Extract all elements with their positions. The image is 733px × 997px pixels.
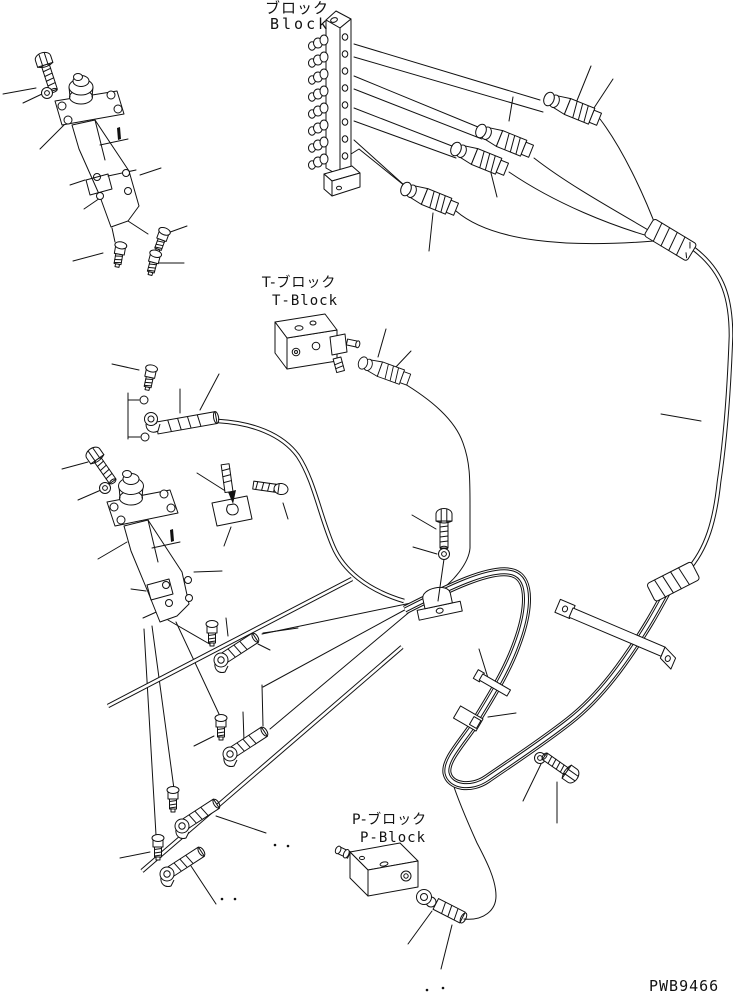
washer-mid-valve — [100, 483, 111, 494]
pilot-valve-upper — [34, 50, 172, 276]
t-block-label-en: T-Block — [272, 294, 338, 308]
mounting-bolt-lower — [535, 749, 582, 786]
clamp-washer — [439, 549, 450, 560]
p-block-label-jp: P-ブロック — [352, 813, 427, 827]
p-block-label-en: P-Block — [360, 831, 426, 845]
hose-wrap-bottom — [646, 561, 700, 602]
elbow-unit-3 — [167, 787, 221, 839]
hose-wrap-top — [644, 218, 697, 261]
p-block-hose-end — [433, 899, 468, 925]
manifold-block-label-en: Block — [270, 17, 330, 32]
bracket-fitting — [221, 464, 233, 493]
parts-diagram-page: ブロック Block T-ブロック T-Block P-ブロック P-Block… — [0, 0, 733, 997]
hydraulic-piping-diagram — [0, 0, 733, 997]
bracket-bolt — [253, 480, 289, 496]
manifold-block-drawing — [309, 11, 361, 196]
t-block-label-jp: T-ブロック — [262, 276, 336, 290]
bolt-lower — [539, 749, 582, 786]
hose-connector-1 — [541, 89, 602, 127]
washer-upper-valve — [42, 88, 53, 99]
elbow-unit-2 — [215, 715, 269, 767]
hose-connector-4 — [398, 179, 459, 217]
hose-pairs — [108, 249, 731, 871]
elbow-hose-mid — [156, 411, 220, 434]
p-block-fitting — [334, 845, 351, 859]
manifold-block-label-jp: ブロック — [265, 1, 329, 16]
clamp-bolt — [436, 509, 452, 550]
hose-connectors — [398, 89, 602, 217]
elbow-unit-4 — [152, 835, 206, 887]
bolt-mid-valve — [84, 444, 121, 487]
t-block-drawing — [275, 314, 411, 387]
p-block-drawing — [334, 843, 468, 924]
pilot-valve-lower — [84, 364, 289, 622]
fitting-upper-1 — [111, 241, 127, 268]
drawing-number: PWB9466 — [649, 979, 719, 994]
fitting-mid-top — [141, 364, 158, 391]
